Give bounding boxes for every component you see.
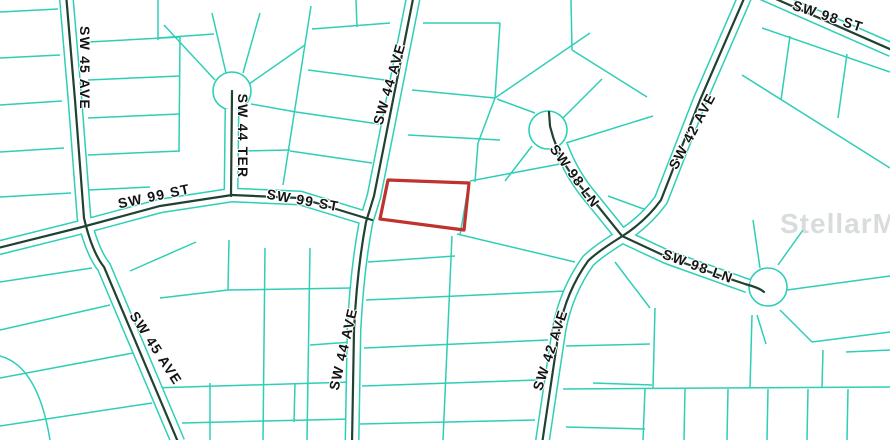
parcel-boundary (0, 193, 71, 197)
parcel-boundary (457, 234, 575, 262)
parcel-boundary (0, 9, 58, 12)
parcel-boundary (563, 387, 890, 389)
map-canvas: SW 45 AVE SW 44 TER SW 99 ST SW 99 ST SW… (0, 0, 890, 440)
parcel-boundary (571, 0, 572, 50)
parcel-boundary (470, 164, 560, 181)
parcel-boundary (0, 305, 110, 330)
parcel-boundary (0, 356, 50, 440)
parcel-boundary (263, 248, 265, 440)
parcel-boundary (88, 187, 150, 190)
parcel-boundary (566, 427, 645, 429)
parcel-boundary (838, 54, 847, 118)
parcel-boundary (0, 55, 60, 58)
street-label-sw-44-ter: SW 44 TER (235, 94, 251, 179)
parcel-boundary (243, 13, 260, 73)
parcel-boundary (847, 389, 848, 440)
parcel-boundary (294, 383, 295, 422)
parcel-boundary (780, 310, 812, 342)
parcel-boundary (0, 353, 133, 378)
parcel-boundary (781, 36, 790, 100)
parcel-boundary (643, 389, 645, 440)
parcel-map[interactable]: SW 45 AVE SW 44 TER SW 99 ST SW 99 ST SW… (0, 0, 890, 440)
parcel-boundary (88, 76, 180, 80)
parcel-boundary (750, 315, 752, 388)
parcel-boundary (182, 419, 352, 423)
parcel-boundary (0, 148, 64, 152)
parcel-boundary (593, 383, 652, 385)
parcel-boundary (362, 380, 538, 386)
parcel-boundary (0, 101, 62, 105)
parcel-boundary (290, 151, 372, 163)
parcel-boundary (412, 90, 495, 98)
parcel-boundary (753, 220, 760, 268)
parcel-boundary (505, 146, 532, 181)
parcel-boundary (812, 332, 890, 342)
parcel-boundary (742, 75, 890, 168)
parcel-boundary (88, 151, 180, 155)
parcel-boundary (307, 248, 310, 440)
parcel-boundary (130, 242, 196, 271)
parcel-boundary (727, 389, 728, 440)
parcel-boundary (88, 114, 180, 118)
parcel-boundary (228, 288, 352, 290)
parcel-boundary (563, 79, 602, 118)
parcel-boundary (572, 50, 647, 97)
parcel-boundary (684, 389, 685, 440)
parcel-boundary (212, 13, 226, 73)
parcel-boundary (0, 403, 152, 426)
parcel-boundary (0, 268, 92, 282)
parcel-boundary (152, 382, 352, 388)
parcel-boundary (296, 112, 379, 124)
parcel-boundary (228, 240, 229, 290)
parcel-boundary (822, 350, 823, 388)
parcel-boundary (807, 389, 808, 440)
street-label-sw-98-ln-upper: SW 98 LN (547, 141, 604, 210)
parcel-boundary (364, 340, 548, 348)
parcel-boundary (366, 291, 566, 300)
parcel-boundary (757, 315, 766, 344)
parcel-boundary (408, 135, 500, 140)
watermark-text: StellarMLS (780, 208, 890, 239)
parcel-boundary (615, 262, 650, 308)
street-edges (0, 0, 890, 440)
parcel-boundary (251, 104, 296, 112)
street-centerline-sw-42-ave (542, 0, 746, 440)
parcel-boundary (495, 23, 500, 98)
parcel-boundary (179, 37, 180, 151)
parcel-boundary (164, 25, 215, 80)
parcel-boundary (653, 308, 655, 388)
highlighted-parcel-outline (380, 180, 469, 230)
parcel-boundary (360, 420, 535, 424)
parcel-boundary (566, 116, 653, 143)
parcel-boundary (767, 389, 768, 440)
street-centerline-sw-44-ter (231, 91, 232, 196)
street-label-sw-99-st-east: SW 99 ST (265, 186, 340, 215)
parcel-boundary (312, 23, 390, 29)
parcel-boundary (356, 0, 357, 27)
parcel-boundary (308, 70, 385, 80)
parcel-boundary (283, 6, 311, 185)
parcel-boundary (160, 290, 228, 298)
parcel-boundary (368, 256, 455, 262)
parcel-boundary (158, 34, 214, 38)
street-label-sw-45-ave-upper: SW 45 AVE (77, 26, 93, 110)
parcel-boundary (787, 276, 890, 290)
parcel-boundary (846, 350, 890, 352)
parcel-boundary (475, 143, 478, 182)
parcel-boundary (478, 98, 495, 143)
parcel-boundary (566, 344, 650, 346)
parcel-boundary (443, 236, 452, 440)
parcel-boundary (495, 33, 590, 98)
parcel-boundary (497, 99, 535, 113)
parcel-boundary (249, 45, 305, 84)
